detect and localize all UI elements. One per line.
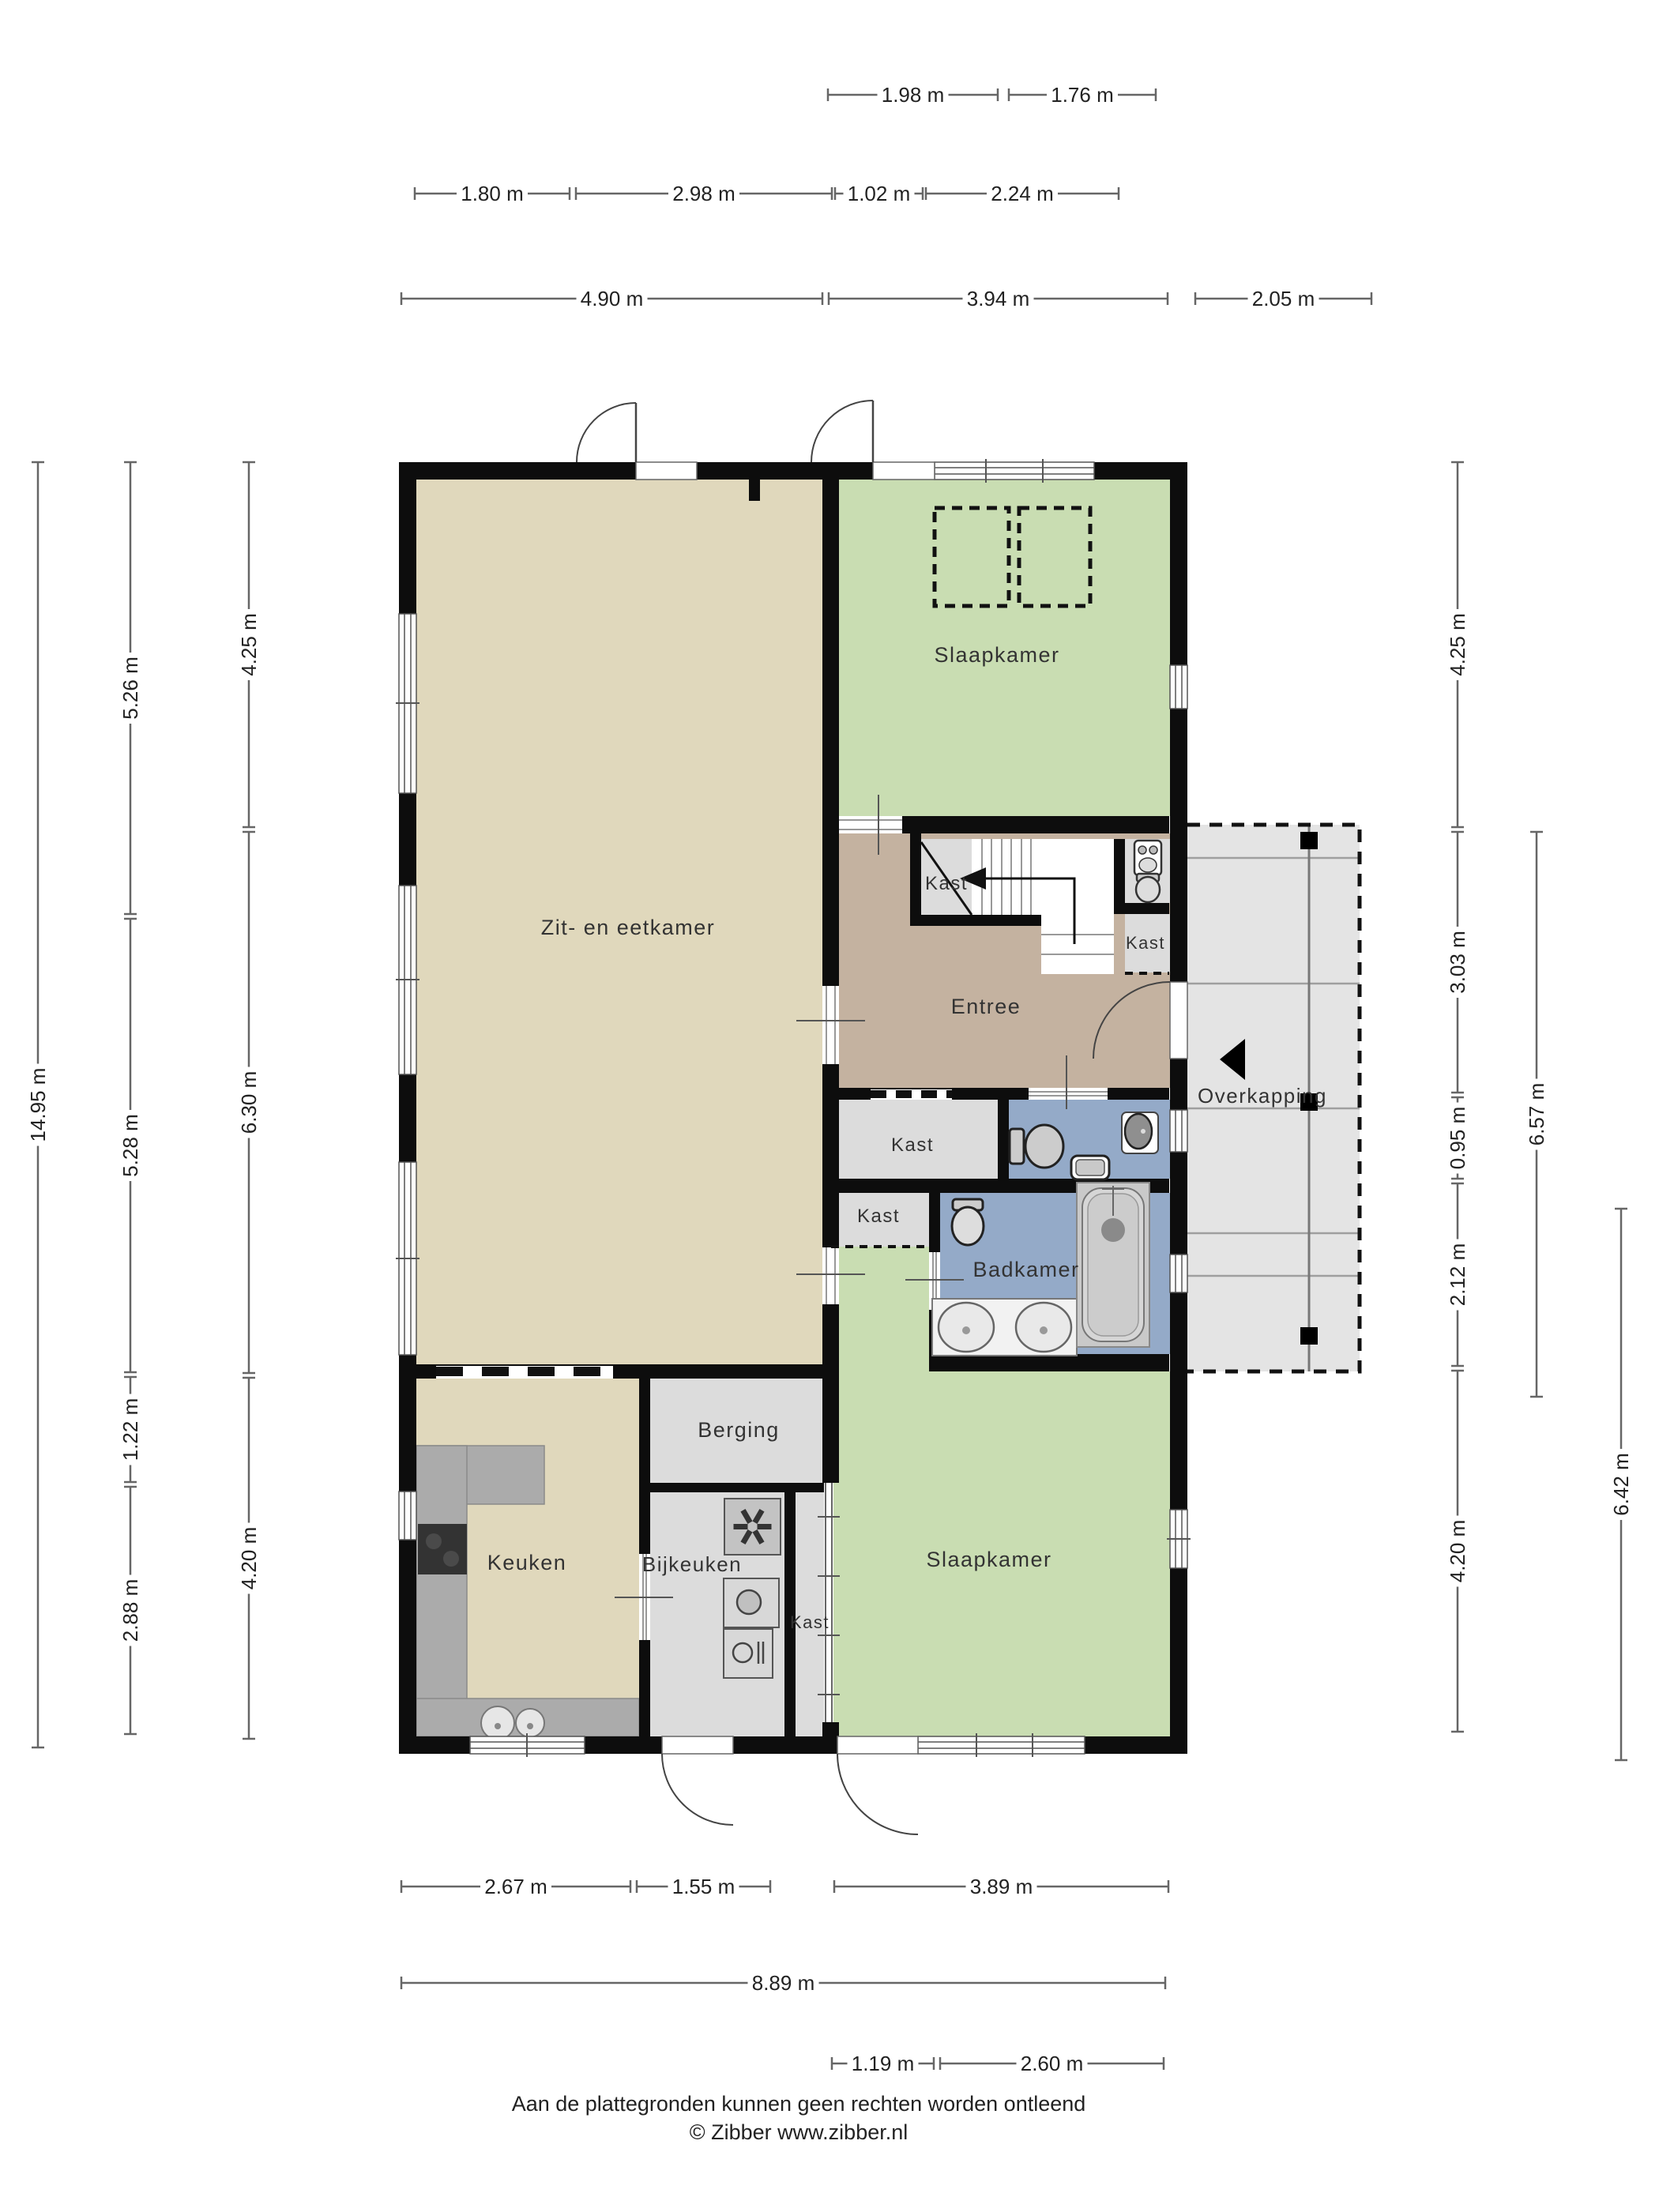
room-label: Slaapkamer	[926, 1548, 1051, 1571]
door-swing-arc	[811, 401, 873, 462]
pocket-door	[822, 1247, 839, 1304]
dimension-label: 14.95 m	[26, 1068, 50, 1142]
window	[1170, 1110, 1187, 1152]
dimension-label: 4.20 m	[1446, 1520, 1469, 1583]
window	[1170, 665, 1187, 709]
room-label: Overkapping	[1198, 1084, 1327, 1108]
room-label: Keuken	[487, 1551, 567, 1574]
wall-sink-basin	[1076, 1160, 1104, 1176]
pocket-door	[822, 986, 839, 1064]
dimension-label: 2.67 m	[484, 1875, 547, 1898]
room-label: Slaapkamer	[934, 643, 1059, 667]
door-opening	[1170, 982, 1187, 1059]
door-swing-arc	[662, 1754, 733, 1825]
dimension-label: 6.30 m	[237, 1071, 261, 1134]
window	[1170, 1255, 1187, 1292]
dimension-label: 2.24 m	[991, 182, 1054, 205]
room-label: Kast	[857, 1206, 900, 1227]
dimension-label: 1.98 m	[882, 83, 945, 107]
washer-door-icon	[737, 1590, 761, 1614]
room-label: Kast	[925, 873, 968, 894]
room-label: Entree	[951, 995, 1021, 1018]
wall	[822, 480, 839, 1379]
sink-basin	[1139, 858, 1157, 872]
room-label: Kast	[790, 1612, 829, 1632]
cooktop-burner	[443, 1551, 459, 1567]
dimension-label: 2.60 m	[1021, 2052, 1084, 2075]
dimension-label: 2.12 m	[1446, 1243, 1469, 1307]
dimension-label: 8.89 m	[752, 1971, 815, 1995]
dimension-label: 4.25 m	[237, 613, 261, 676]
cooktop	[418, 1524, 467, 1574]
kitchen-sink-drain	[527, 1723, 533, 1729]
wall	[929, 1354, 1169, 1371]
room-label: Badkamer	[972, 1258, 1079, 1281]
dimension-label: 1.80 m	[461, 182, 524, 205]
dimension-label: 2.05 m	[1252, 287, 1315, 310]
room-label: Kast	[891, 1134, 934, 1156]
toilet-bowl	[1136, 877, 1160, 902]
footer-disclaimer: Aan de plattegronden kunnen geen rechten…	[0, 2090, 1597, 2118]
window	[935, 462, 1094, 480]
wall	[910, 915, 1041, 926]
door-swing-arc	[837, 1754, 918, 1834]
dimension-label: 0.95 m	[1446, 1107, 1469, 1170]
overkapping-post	[1300, 832, 1318, 849]
sink-tap	[1149, 846, 1157, 854]
footer-copyright: © Zibber www.zibber.nl	[0, 2118, 1597, 2146]
wall	[1114, 903, 1169, 914]
door-opening	[662, 1736, 733, 1754]
wall	[998, 1100, 1009, 1179]
toilet-tank	[1010, 1129, 1024, 1164]
tub-drain	[1101, 1218, 1125, 1242]
wall	[822, 1379, 839, 1483]
wall	[822, 1722, 839, 1736]
corner-sink-drain	[1141, 1129, 1145, 1134]
pocket-door	[839, 816, 902, 833]
overkapping-post	[1300, 1327, 1318, 1345]
dimension-label: 6.57 m	[1525, 1083, 1548, 1146]
dimension-label: 4.90 m	[581, 287, 644, 310]
door-swing-arc	[577, 403, 636, 462]
dimension-label: 5.28 m	[118, 1114, 142, 1177]
dimension-label: 1.19 m	[852, 2052, 915, 2075]
dimension-label: 1.76 m	[1051, 83, 1114, 107]
dimension-label: 4.25 m	[1446, 613, 1469, 676]
dimension-label: 4.20 m	[237, 1527, 261, 1590]
dimension-label: 3.03 m	[1446, 931, 1469, 994]
dimension-label: 3.89 m	[970, 1875, 1033, 1898]
corner-sink-bowl	[1125, 1114, 1152, 1149]
wall	[910, 833, 921, 926]
dimension-label: 3.94 m	[967, 287, 1030, 310]
ventilation-unit	[724, 1499, 781, 1555]
dimension-label: 1.22 m	[118, 1398, 142, 1461]
dimension-label: 1.55 m	[672, 1875, 735, 1898]
dimension-label: 2.98 m	[672, 182, 735, 205]
window	[918, 1736, 1085, 1754]
vanity-drain	[1040, 1326, 1048, 1334]
floorplan-canvas: Zit- en eetkamerSlaapkamerEntreeKastKast…	[0, 0, 1659, 2212]
window	[399, 1492, 416, 1540]
stairs-lower	[1041, 915, 1114, 974]
kitchen-counter	[416, 1446, 467, 1736]
dimension-label: 6.42 m	[1609, 1453, 1633, 1516]
dimension-label: 2.88 m	[118, 1579, 142, 1642]
wall	[749, 480, 760, 501]
room-label: Zit- en eetkamer	[541, 916, 716, 939]
wall	[1114, 839, 1125, 914]
room-label: Kast	[1126, 933, 1165, 953]
floorplan-page: Zit- en eetkamerSlaapkamerEntreeKastKast…	[0, 0, 1659, 2212]
room-label: Berging	[698, 1418, 780, 1442]
door-opening	[837, 1736, 918, 1754]
dishwasher	[724, 1629, 773, 1678]
door-opening	[873, 462, 935, 480]
dimension-label: 5.26 m	[118, 656, 142, 720]
pocket-door	[1029, 1088, 1108, 1100]
door-opening	[636, 462, 697, 480]
cooktop-burner	[426, 1533, 442, 1549]
toilet-bowl	[1025, 1125, 1063, 1168]
vanity-drain	[962, 1326, 970, 1334]
wall	[639, 1483, 831, 1492]
room-label: Bijkeuken	[642, 1552, 742, 1576]
footer: Aan de plattegronden kunnen geen rechten…	[0, 2090, 1597, 2146]
sink-tap	[1138, 846, 1146, 854]
stairs-landing	[1041, 839, 1114, 915]
kitchen-sink-drain	[495, 1723, 501, 1729]
toilet-bowl	[952, 1207, 984, 1245]
room-corridor	[831, 1247, 929, 1381]
dimension-label: 1.02 m	[848, 182, 911, 205]
